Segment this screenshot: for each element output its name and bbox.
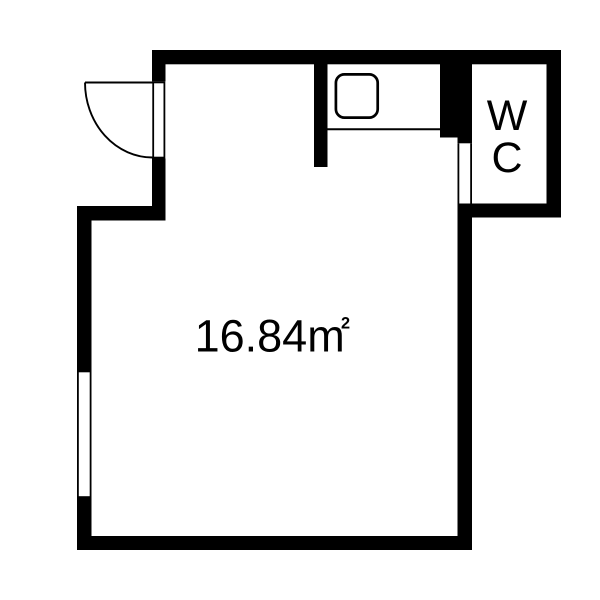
svg-text:2: 2	[341, 314, 350, 332]
svg-text:W: W	[487, 92, 528, 140]
svg-text:C: C	[491, 134, 522, 182]
svg-text:16.84m: 16.84m	[195, 311, 345, 362]
